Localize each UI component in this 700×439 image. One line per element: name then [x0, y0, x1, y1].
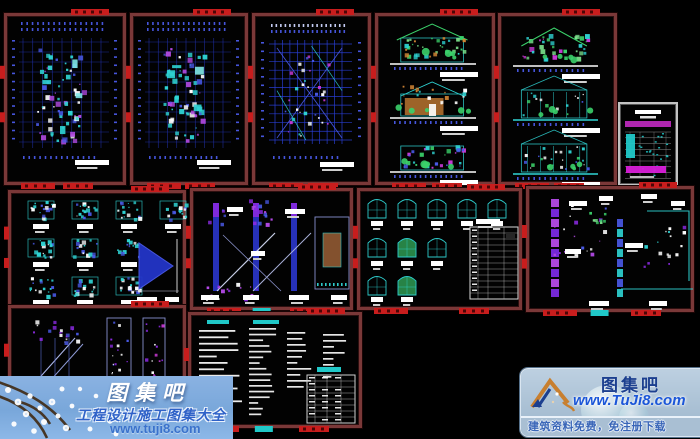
wall-details-drawing: [529, 189, 691, 309]
watermark-left-url: www.tuji8.com: [110, 421, 201, 436]
sheet-elevations-2: [498, 13, 617, 185]
cad-collage-stage: 图集吧 工程设计施工图集大全 www.tuji8.com 图集吧 www.TuJ…: [0, 0, 700, 439]
sheet-wall-details: [526, 186, 694, 312]
watermark-right: 图集吧 www.TuJi8.com 建筑资料免费，免注册下载: [520, 368, 700, 437]
sheet-window-schedule: [357, 188, 522, 310]
watermark-right-url: www.TuJi8.com: [573, 392, 686, 409]
window-schedule-drawing: [360, 191, 519, 307]
elevations-1-drawing: [378, 16, 492, 182]
tuji8-roof-logo-icon: [527, 372, 577, 416]
sheet-index-drawing: [620, 104, 676, 184]
floor-plan-1-drawing: [7, 16, 123, 182]
elevations-2-drawing: [501, 16, 614, 182]
watermark-left-site-name: 图集吧: [106, 377, 190, 407]
sheet-details-grid: [8, 190, 186, 308]
watermark-left: 图集吧 工程设计施工图集大全 www.tuji8.com: [0, 376, 233, 439]
sheet-stair-sections: [190, 188, 353, 310]
sheet-floor-plan-1: [4, 13, 126, 185]
stair-sections-drawing: [193, 191, 350, 307]
sheet-sheet-index: [618, 102, 678, 186]
sheet-elevations-1: [375, 13, 495, 185]
sheet-roof-plan: [252, 13, 371, 185]
roof-plan-drawing: [255, 16, 368, 182]
watermark-right-slogan: 建筑资料免费，免注册下载: [528, 418, 666, 434]
details-grid-drawing: [11, 193, 183, 305]
sheet-floor-plan-2: [130, 13, 248, 185]
floor-plan-2-drawing: [133, 16, 245, 182]
